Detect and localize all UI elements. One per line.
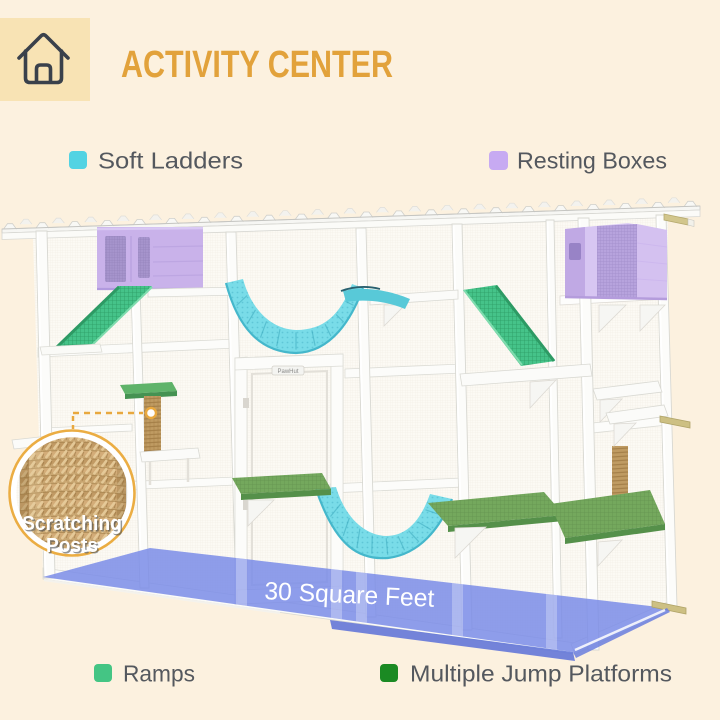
svg-text:Resting Boxes: Resting Boxes — [517, 148, 667, 174]
svg-text:Posts: Posts — [46, 534, 98, 557]
svg-text:Scratching: Scratching — [22, 512, 122, 535]
svg-text:Ramps: Ramps — [123, 661, 195, 687]
svg-text:Multiple Jump Platforms: Multiple Jump Platforms — [410, 661, 672, 687]
svg-text:Soft Ladders: Soft Ladders — [98, 148, 243, 174]
svg-text:ACTIVITY CENTER: ACTIVITY CENTER — [121, 44, 393, 86]
svg-text:PawHut: PawHut — [277, 369, 298, 375]
